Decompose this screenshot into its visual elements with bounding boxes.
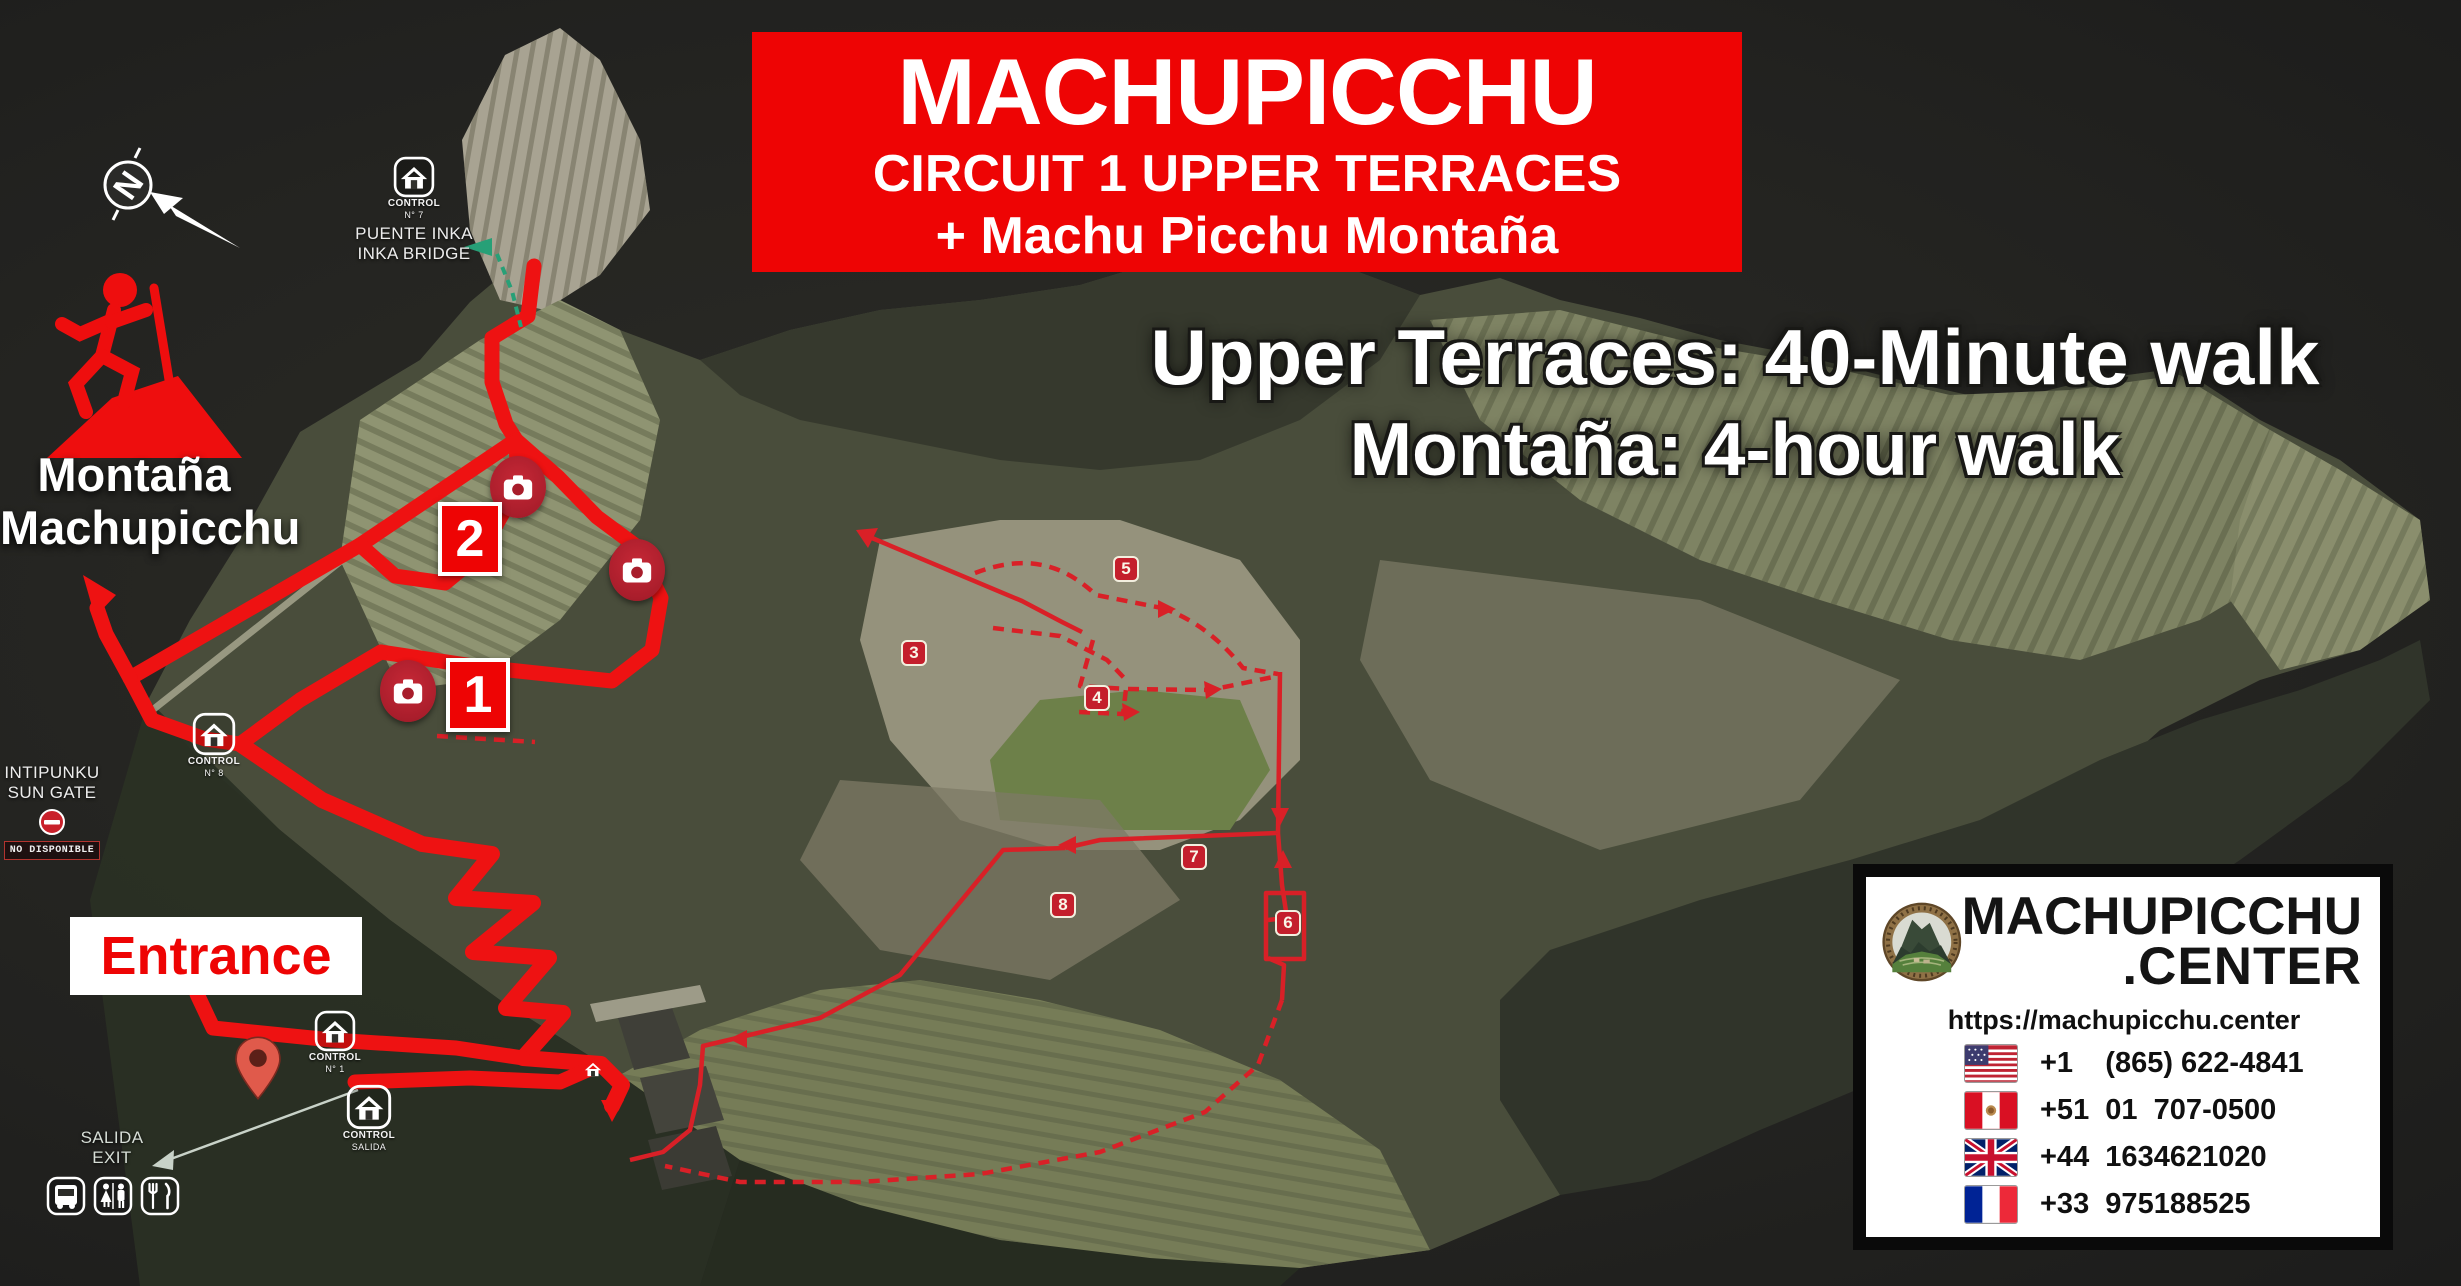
status-badge: NO DISPONIBLE (4, 841, 101, 860)
intipunku-name-es: INTIPUNKU (4, 763, 99, 783)
waypoint-box-2: 2 (438, 502, 502, 576)
montana-label-line2: Machupicchu (0, 501, 268, 554)
control-house-icon (192, 712, 236, 756)
brand-logo (1882, 891, 1962, 993)
upper-terraces-duration: Upper Terraces: 40-Minute walk (1020, 318, 2450, 396)
control1-label: CONTROL (309, 1052, 361, 1064)
control-salida-label: CONTROL (343, 1130, 395, 1142)
title-line3: + Machu Picchu Montaña (752, 210, 1742, 262)
montana-label-line1: Montaña (0, 448, 268, 501)
control-house-icon (393, 156, 435, 198)
control-salida-sub: SALIDA (343, 1142, 395, 1152)
salida-exit-label: SALIDA EXIT (60, 1128, 164, 1168)
entrance-label: Entrance (70, 917, 362, 995)
control7-number: N° 7 (388, 210, 440, 220)
puente-inka-checkpoint: CONTROL N° 7 PUENTE INKA INKA BRIDGE (330, 156, 498, 264)
walk-duration-caption: Upper Terraces: 40-Minute walk Montaña: … (1020, 318, 2450, 487)
waypoint-badge-6: 6 (1275, 910, 1301, 936)
uk-flag-icon (1964, 1138, 2018, 1177)
no-entry-icon (38, 808, 66, 836)
us-flag-icon (1964, 1044, 2018, 1083)
intipunku-sun-gate: INTIPUNKU SUN GATE NO DISPONIBLE (0, 763, 104, 860)
phone-us: +1 (865) 622-4841 (2040, 1047, 2304, 1080)
title-line2: CIRCUIT 1 UPPER TERRACES (752, 148, 1742, 200)
brand-header: MACHUPICCHU .CENTER (1882, 891, 2366, 993)
restaurant-icon (140, 1176, 180, 1216)
map-pin-icon (235, 1036, 281, 1100)
control-house-icon (314, 1010, 356, 1052)
waypoint-badge-5: 5 (1113, 556, 1139, 582)
phone-row-us: +1 (865) 622-4841 (1964, 1043, 2366, 1083)
exit-label: EXIT (60, 1148, 164, 1168)
salida-label: SALIDA (60, 1128, 164, 1148)
control7-label: CONTROL (388, 198, 440, 210)
phone-row-france: +33 975188525 (1964, 1184, 2366, 1224)
montana-machupicchu-label: Montaña Machupicchu (0, 448, 268, 554)
waypoint-badge-3: 3 (901, 640, 927, 666)
control-salida-checkpoint: CONTROL SALIDA (334, 1084, 404, 1152)
title-line1: MACHUPICCHU (752, 44, 1742, 140)
control-8-checkpoint: CONTROL N° 8 (178, 712, 250, 778)
bus-icon (46, 1176, 86, 1216)
control-house-icon (580, 1056, 606, 1082)
puente-inka-name-en: INKA BRIDGE (355, 244, 473, 264)
phone-france: +33 975188525 (2040, 1188, 2250, 1221)
title-banner: MACHUPICCHU CIRCUIT 1 UPPER TERRACES + M… (752, 32, 1742, 272)
exit-direction-arrow (152, 1090, 358, 1170)
control8-label: CONTROL (188, 756, 240, 768)
puente-inka-name-es: PUENTE INKA (355, 224, 473, 244)
machu-picchu-circuit-map: MACHUPICCHU CIRCUIT 1 UPPER TERRACES + M… (0, 0, 2461, 1286)
peru-flag-icon (1964, 1091, 2018, 1130)
dashed-route-thin (437, 563, 1282, 1182)
phone-peru: +51 01 707-0500 (2040, 1094, 2276, 1127)
hiker-mountain-icon (42, 250, 302, 465)
control1-number: N° 1 (309, 1064, 361, 1074)
website-url[interactable]: https://machupicchu.center (1882, 1005, 2366, 1036)
facilities-icons (46, 1176, 180, 1216)
phone-uk: +44 1634621020 (2040, 1141, 2267, 1174)
control-1-checkpoint: CONTROL N° 1 (303, 1010, 367, 1074)
intipunku-name-en: SUN GATE (4, 783, 99, 803)
waypoint-badge-8: 8 (1050, 892, 1076, 918)
brand-name: MACHUPICCHU (1962, 892, 2362, 942)
phone-row-uk: +44 1634621020 (1964, 1137, 2366, 1177)
phone-row-peru: +51 01 707-0500 (1964, 1090, 2366, 1130)
france-flag-icon (1964, 1185, 2018, 1224)
brand-tld: .CENTER (1962, 942, 2362, 992)
waypoint-badge-7: 7 (1181, 844, 1207, 870)
control-house-icon (346, 1084, 392, 1130)
contact-card: MACHUPICCHU .CENTER https://machupicchu.… (1853, 864, 2393, 1250)
compass-north-icon: N (88, 140, 258, 260)
waypoint-badge-4: 4 (1084, 685, 1110, 711)
waypoint-box-1: 1 (446, 658, 510, 732)
restroom-icon (93, 1176, 133, 1216)
thin-route-arrowheads (729, 528, 1292, 1048)
control8-number: N° 8 (188, 768, 240, 778)
montana-duration: Montaña: 4-hour walk (1020, 412, 2450, 487)
camera-viewpoint-icon (609, 539, 665, 601)
camera-viewpoint-icon (380, 660, 436, 722)
